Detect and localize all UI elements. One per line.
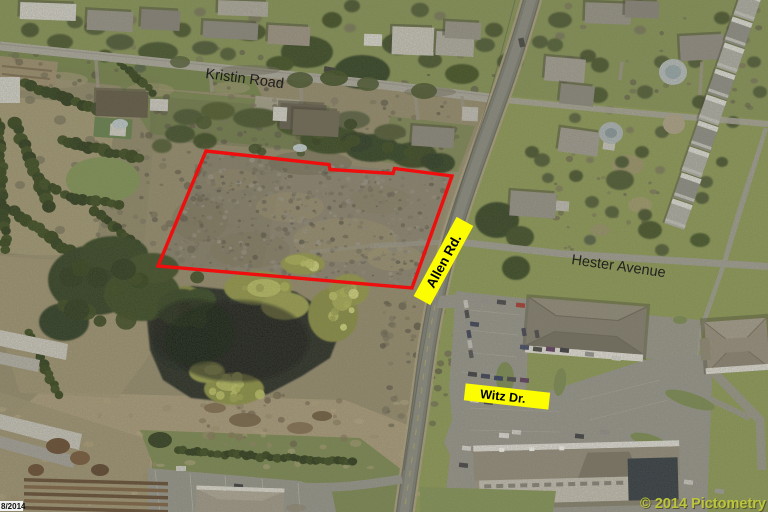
svg-text:© 2014 Pictometry: © 2014 Pictometry [640,496,766,512]
svg-text:8/2014: 8/2014 [1,502,26,511]
